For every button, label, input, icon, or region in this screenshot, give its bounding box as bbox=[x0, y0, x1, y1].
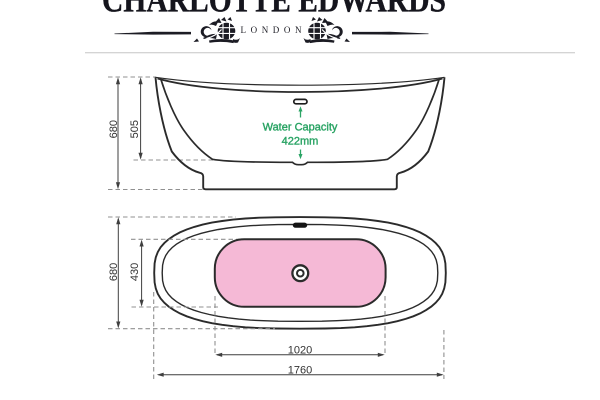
svg-text:CHARLOTTE EDWARDS: CHARLOTTE EDWARDS bbox=[102, 0, 446, 20]
svg-text:680: 680 bbox=[108, 263, 120, 281]
svg-text:422mm: 422mm bbox=[282, 136, 319, 148]
svg-text:430: 430 bbox=[129, 263, 141, 281]
svg-text:LONDON: LONDON bbox=[241, 25, 307, 35]
svg-text:505: 505 bbox=[129, 120, 141, 138]
svg-text:Water Capacity: Water Capacity bbox=[263, 122, 338, 134]
svg-text:1760: 1760 bbox=[288, 364, 312, 376]
svg-text:680: 680 bbox=[108, 120, 120, 138]
svg-text:1020: 1020 bbox=[288, 344, 312, 356]
